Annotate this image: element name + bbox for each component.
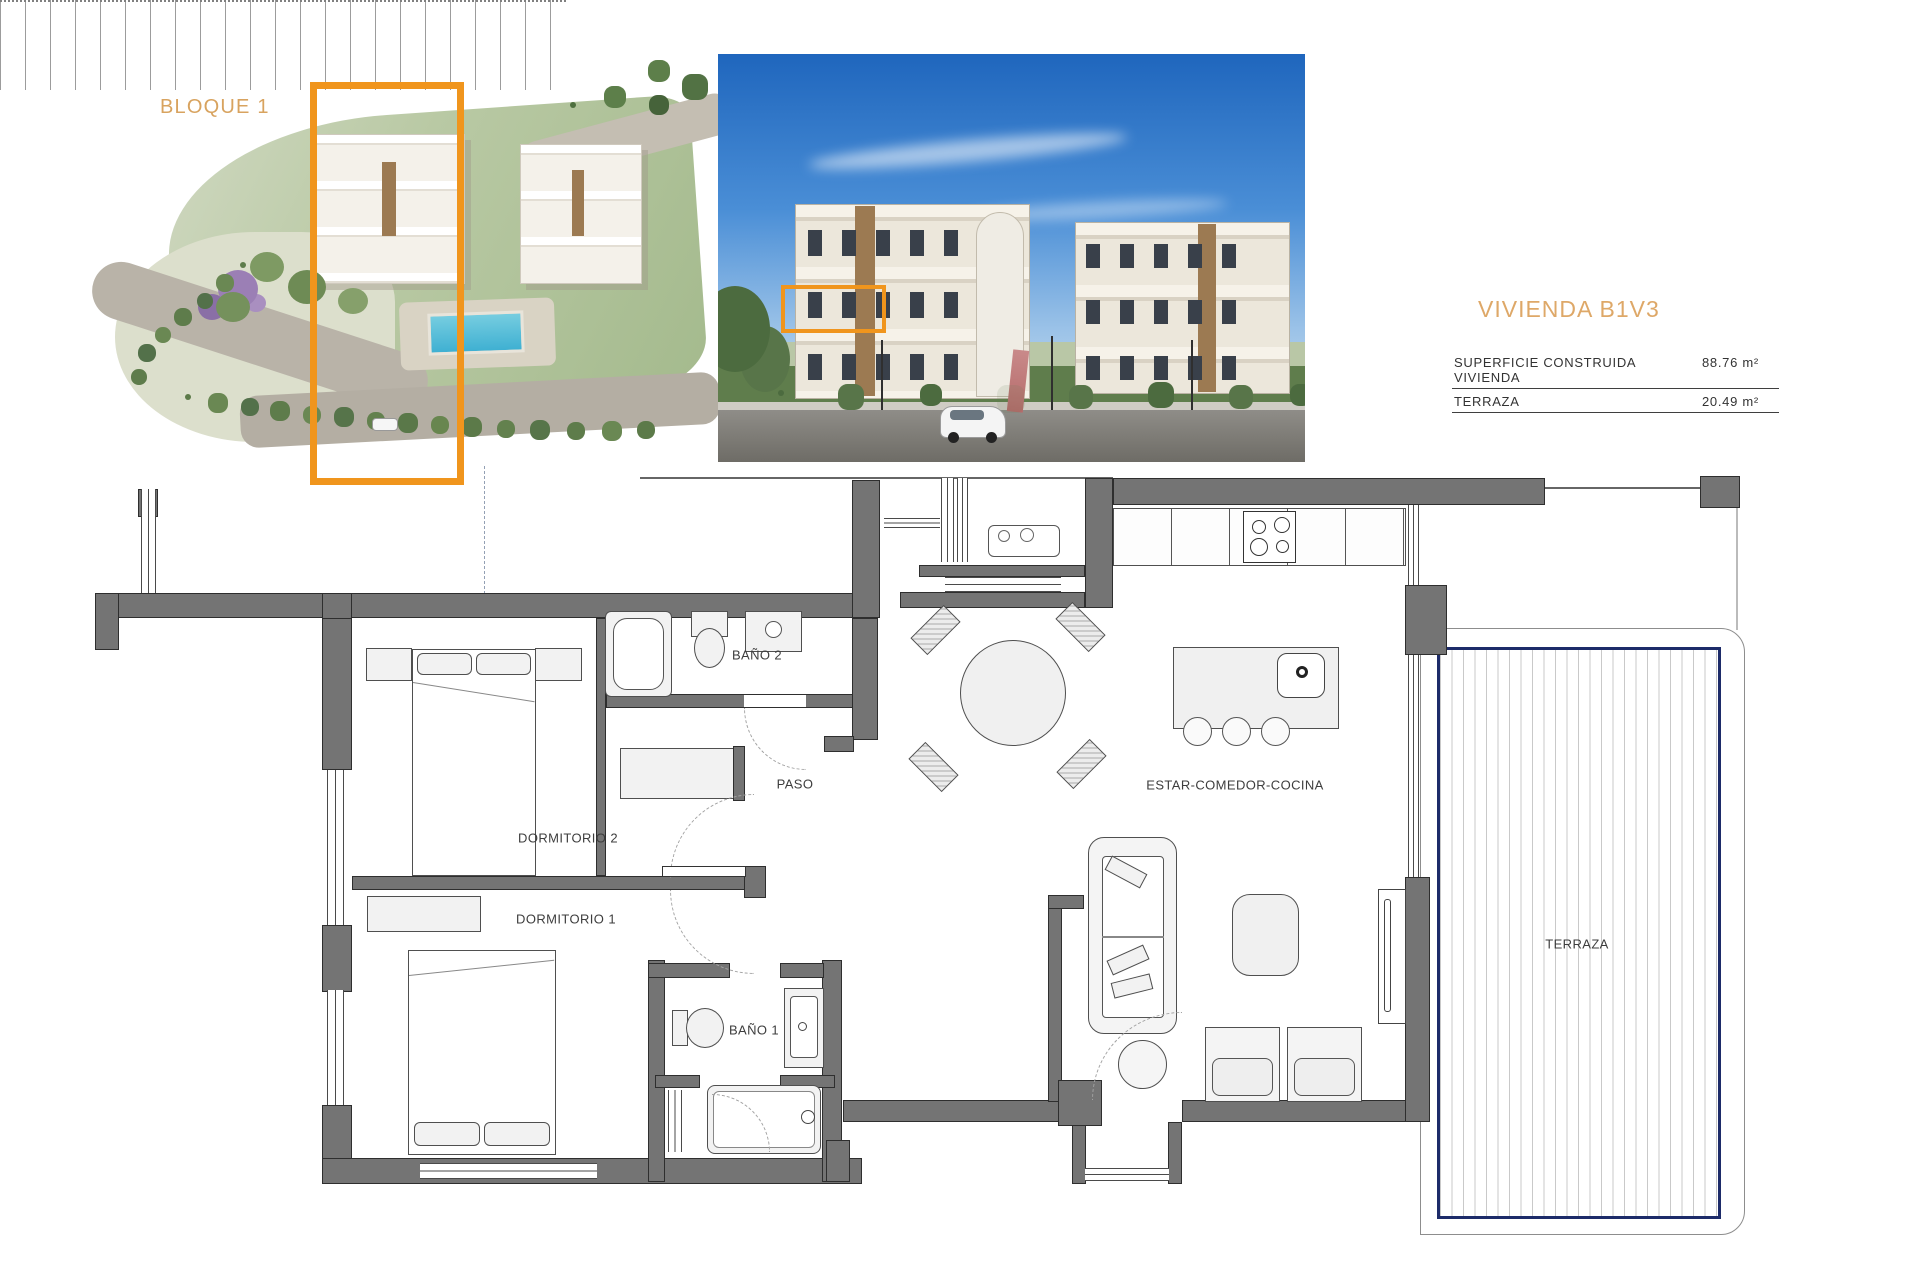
dining-chair: [1055, 602, 1105, 652]
nightstand: [366, 648, 412, 681]
sofa-cushion-line: [1102, 936, 1164, 938]
tv-screen: [1384, 899, 1391, 1012]
bloque1-highlight-box: [310, 82, 464, 485]
lamp-post-3: [1191, 340, 1193, 410]
roof-side-line: [1736, 508, 1738, 630]
wall: [1182, 1100, 1430, 1122]
window: [327, 990, 344, 1105]
wall: [1168, 1122, 1182, 1184]
wall: [733, 746, 745, 801]
wall: [780, 963, 824, 978]
plan-sheet: BLOQUE 1 VIVIENDA B: [0, 0, 1920, 1280]
car-wheel-front: [948, 432, 959, 443]
bathtub-inner: [613, 618, 664, 690]
right-building-windows-3: [1086, 356, 1236, 380]
window: [668, 1090, 682, 1152]
car-wheel-rear: [986, 432, 997, 443]
toilet-bowl: [694, 628, 725, 668]
wall: [1113, 478, 1545, 505]
burner: [1252, 520, 1266, 534]
room-label-bano1: BAÑO 1: [729, 1023, 779, 1038]
wall: [322, 618, 352, 770]
window: [327, 770, 344, 925]
unit-highlight-box: [781, 285, 886, 333]
faucet: [798, 1022, 807, 1031]
room-label-estar: ESTAR-COMEDOR-COCINA: [1146, 778, 1323, 793]
spec-row-superficie: SUPERFICIE CONSTRUIDA VIVIENDA 88.76 m²: [1452, 352, 1779, 389]
section-dash-line: [484, 466, 485, 604]
wall: [322, 925, 352, 992]
stool: [1183, 717, 1212, 746]
lamp-post-2: [1051, 336, 1053, 410]
spec-row-terraza: TERRAZA 20.49 m²: [1452, 391, 1779, 413]
spec-value: 88.76 m²: [1702, 355, 1779, 385]
pillow: [417, 653, 472, 675]
burner: [1250, 538, 1268, 556]
shower-head: [801, 1110, 815, 1124]
window: [941, 478, 954, 562]
wall: [1072, 1122, 1086, 1184]
spec-value: 20.49 m²: [1702, 394, 1779, 409]
spec-label: TERRAZA: [1454, 394, 1702, 409]
wall: [852, 480, 880, 618]
room-label-terraza: TERRAZA: [1545, 937, 1608, 952]
armchair-cushion: [1212, 1058, 1273, 1096]
right-building-windows-1: [1086, 244, 1236, 268]
garden-bushes: [250, 252, 284, 282]
wall: [1048, 895, 1084, 909]
room-label-dormitorio1: DORMITORIO 1: [516, 912, 616, 927]
door-opening: [744, 695, 806, 707]
window: [141, 489, 156, 593]
wall: [919, 565, 1085, 577]
terrace-glass-door: [1408, 655, 1419, 877]
spec-table: SUPERFICIE CONSTRUIDA VIVIENDA 88.76 m² …: [1452, 352, 1779, 415]
window: [1408, 505, 1419, 585]
roof-overhang-line: [1545, 487, 1703, 489]
burner: [1276, 540, 1289, 553]
laundry-knob: [998, 530, 1010, 542]
tv-unit: [1378, 889, 1406, 1024]
unit-title: VIVIENDA B1V3: [1478, 296, 1660, 323]
wardrobe: [620, 748, 734, 799]
wall: [852, 618, 878, 740]
wall: [1405, 877, 1430, 1122]
door-leaf: [662, 866, 746, 877]
room-label-paso: PASO: [777, 777, 814, 792]
aerial-render: [100, 62, 710, 462]
wall: [95, 593, 119, 650]
nightstand: [535, 648, 582, 681]
basin-bowl: [765, 621, 782, 638]
tree-cluster-topright: [570, 102, 576, 108]
spec-label: SUPERFICIE CONSTRUIDA VIVIENDA: [1454, 355, 1702, 385]
wall: [1048, 895, 1062, 1102]
roof-edge-line: [640, 477, 1113, 479]
tree-row-bottom: [185, 394, 191, 400]
dining-chair: [908, 742, 958, 792]
dining-chair: [1056, 739, 1106, 789]
window: [957, 478, 968, 562]
room-label-bano2: BAÑO 2: [732, 648, 782, 663]
purple-tree: [218, 270, 258, 308]
wall: [655, 1075, 700, 1088]
wall: [1700, 476, 1740, 508]
window: [420, 1163, 597, 1179]
door-arc: [744, 708, 806, 770]
right-building-windows-2: [1086, 300, 1236, 324]
island-faucet: [1296, 666, 1308, 678]
stool: [1222, 717, 1251, 746]
bloque-label: BLOQUE 1: [160, 96, 270, 119]
window: [884, 518, 940, 528]
door-arc: [670, 890, 754, 974]
pillow: [476, 653, 531, 675]
laundry-knob: [1020, 528, 1034, 542]
wall: [843, 1100, 1072, 1122]
stool: [1261, 717, 1290, 746]
terrace-decking: [1437, 647, 1721, 1219]
lamp-post: [881, 340, 883, 410]
toilet-bowl: [686, 1008, 724, 1048]
tree-row-left: [240, 262, 246, 268]
entry-threshold: [1085, 1168, 1169, 1181]
road: [718, 410, 1305, 462]
wall: [648, 960, 665, 1182]
wall: [352, 876, 754, 890]
car-window: [950, 410, 984, 420]
dining-chair: [910, 605, 960, 655]
pass-through-window: [945, 577, 1061, 592]
armchair-cushion: [1294, 1058, 1355, 1096]
left-building-windows-3: [808, 354, 968, 380]
pillow: [414, 1122, 480, 1146]
coffee-table: [1232, 894, 1299, 976]
left-building-windows-1: [808, 230, 968, 256]
room-label-dormitorio2: DORMITORIO 2: [518, 831, 618, 846]
closet-row: [367, 896, 481, 932]
dining-table: [960, 640, 1066, 746]
wall: [826, 1140, 850, 1182]
wall: [1085, 478, 1113, 608]
wall: [824, 736, 854, 752]
building-2-wood-accent: [572, 170, 584, 236]
street-render: [718, 54, 1305, 462]
wall: [1405, 585, 1447, 655]
wall: [900, 592, 1085, 608]
burner: [1274, 517, 1290, 533]
street-tree-row: [778, 390, 784, 396]
pillow: [484, 1122, 550, 1146]
